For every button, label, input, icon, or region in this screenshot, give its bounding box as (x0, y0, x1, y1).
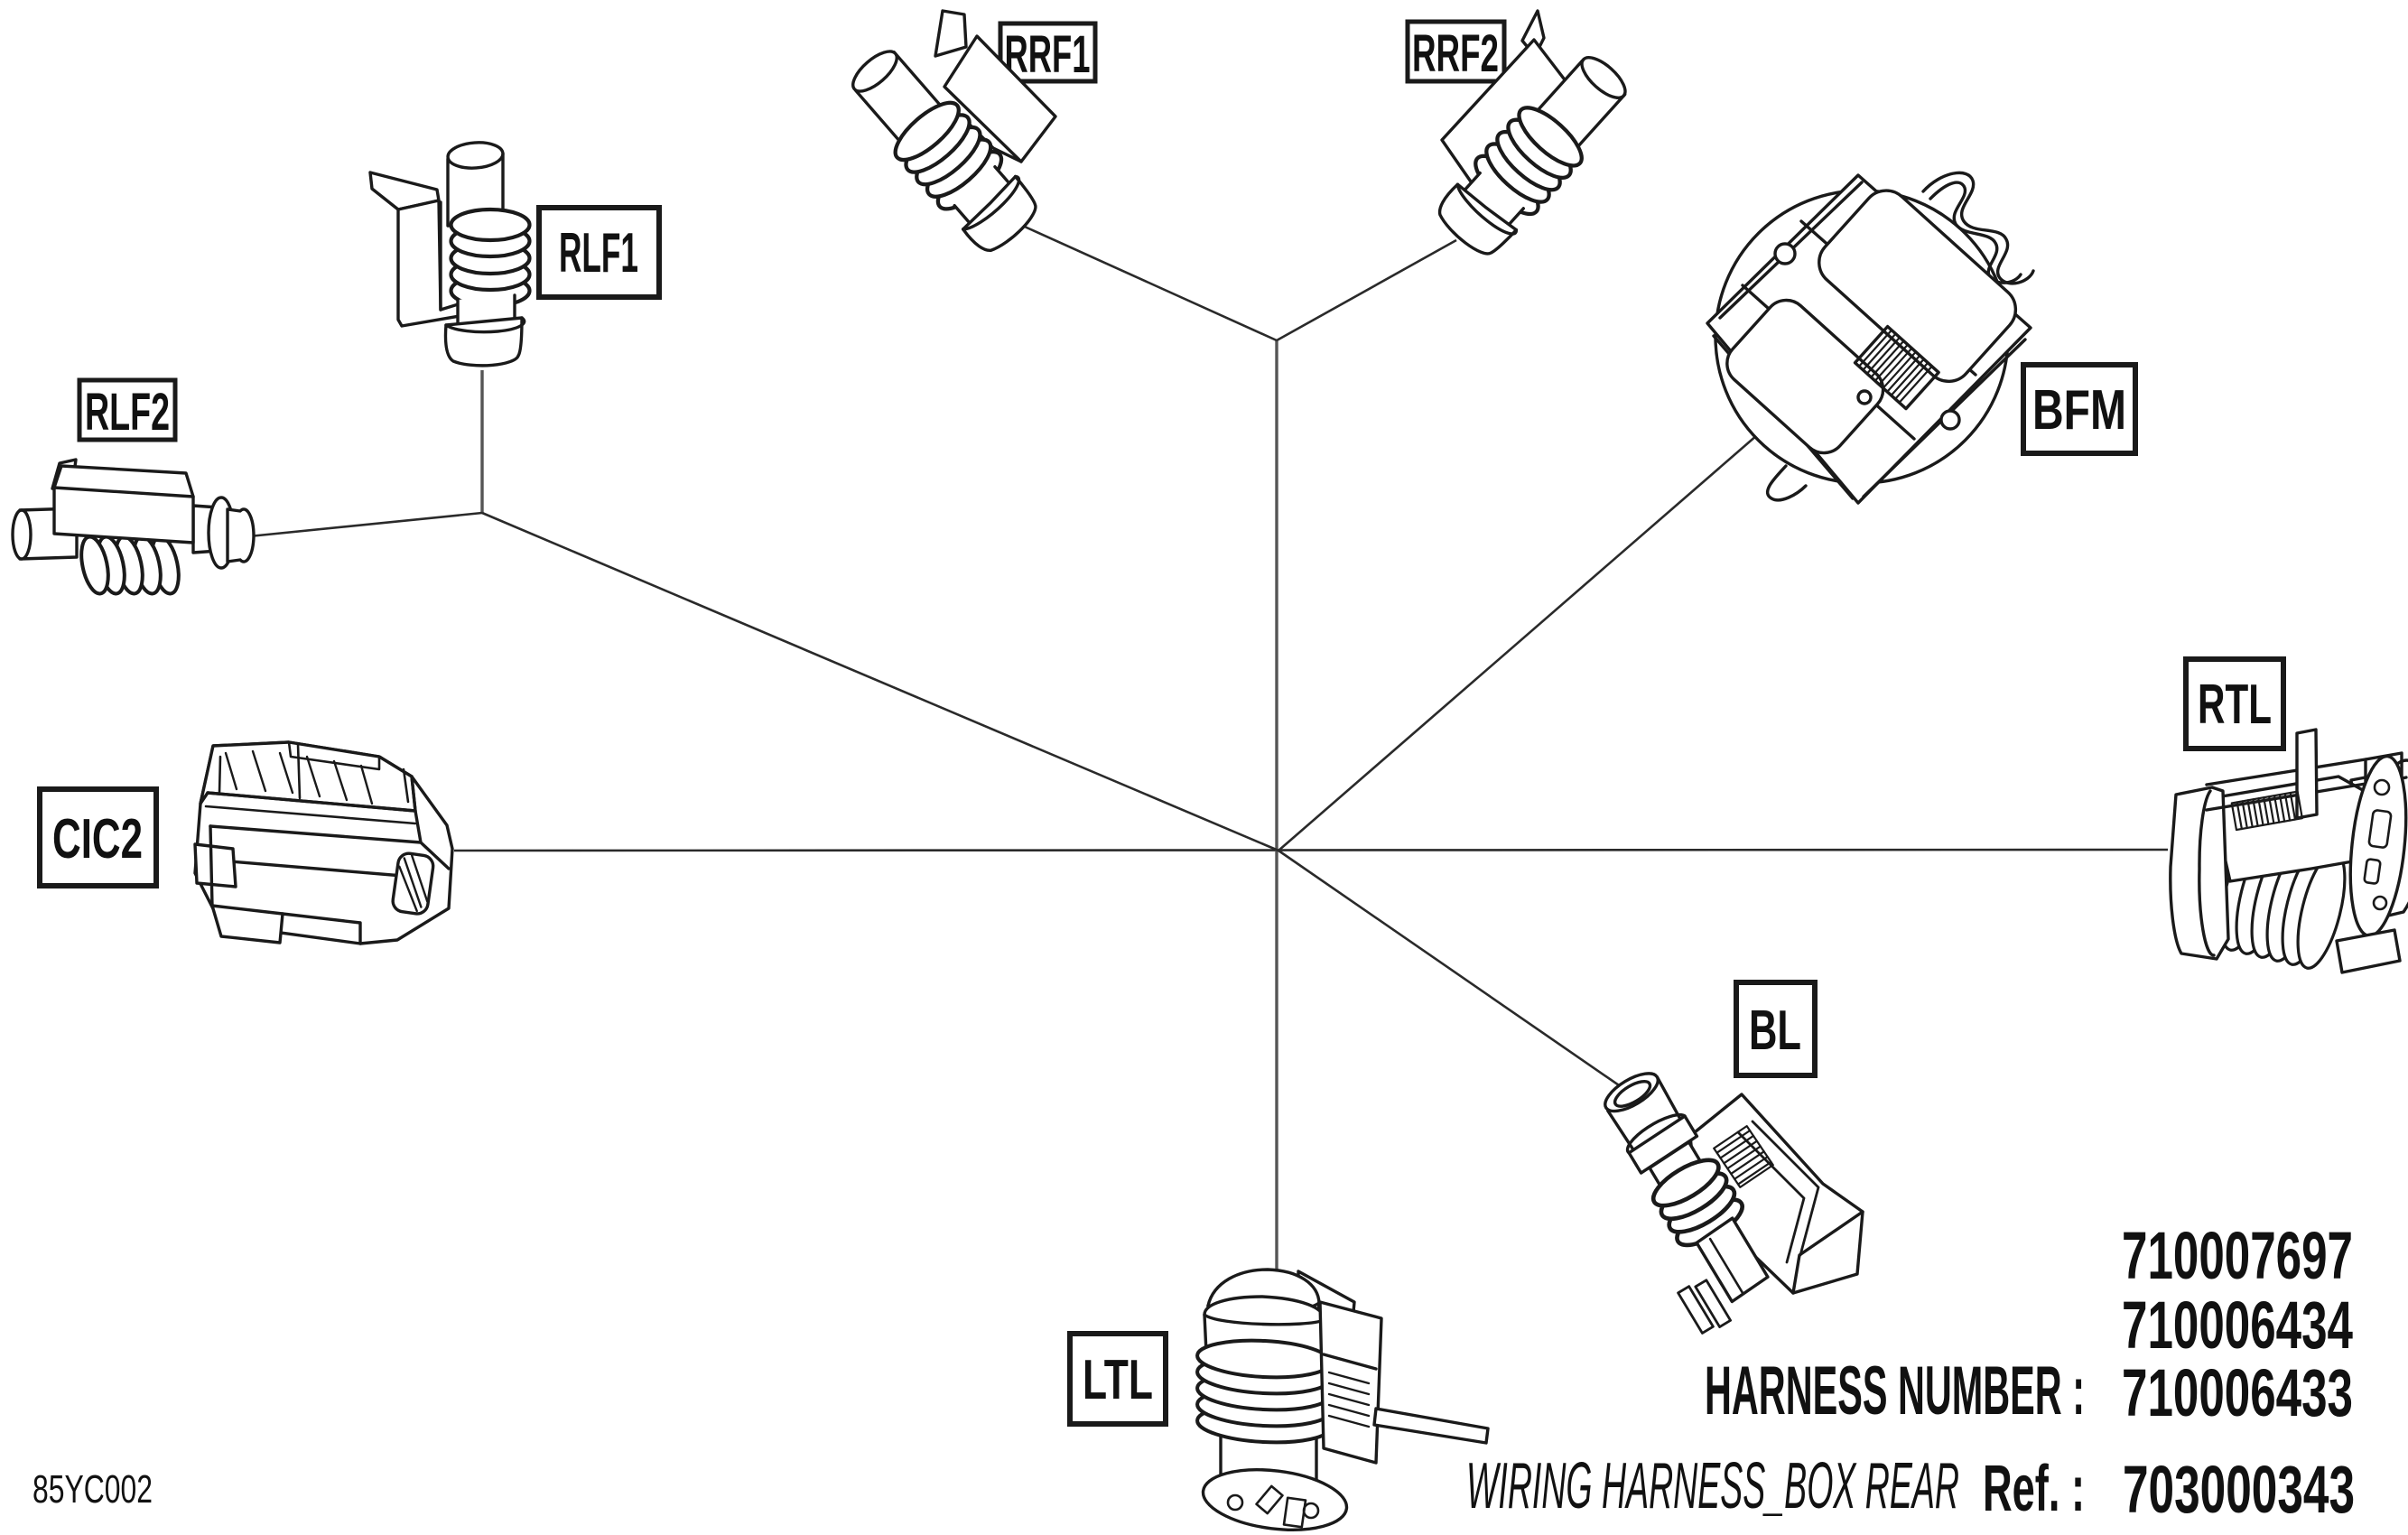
svg-text:710006433: 710006433 (2122, 1355, 2353, 1430)
svg-text:703000343: 703000343 (2123, 1452, 2355, 1527)
svg-text:85YC002: 85YC002 (33, 1467, 153, 1512)
svg-text:RLF2: RLF2 (85, 383, 170, 442)
svg-text:RTL: RTL (2198, 674, 2272, 736)
svg-text:LTL: LTL (1083, 1349, 1153, 1411)
svg-text:WIRING HARNESS_BOX REAR: WIRING HARNESS_BOX REAR (1466, 1450, 1959, 1522)
svg-text:710007697: 710007697 (2122, 1218, 2353, 1293)
svg-text:RRF2: RRF2 (1412, 24, 1499, 83)
svg-text:BL: BL (1749, 1000, 1801, 1062)
svg-text:RRF1: RRF1 (1005, 25, 1091, 84)
svg-text:Ref. :: Ref. : (1983, 1453, 2085, 1525)
svg-text:HARNESS NUMBER :: HARNESS NUMBER : (1705, 1353, 2085, 1429)
svg-text:RLF1: RLF1 (559, 222, 638, 284)
svg-text:BFM: BFM (2032, 379, 2126, 442)
svg-text:CIC2: CIC2 (52, 808, 143, 870)
svg-text:710006434: 710006434 (2122, 1288, 2353, 1363)
